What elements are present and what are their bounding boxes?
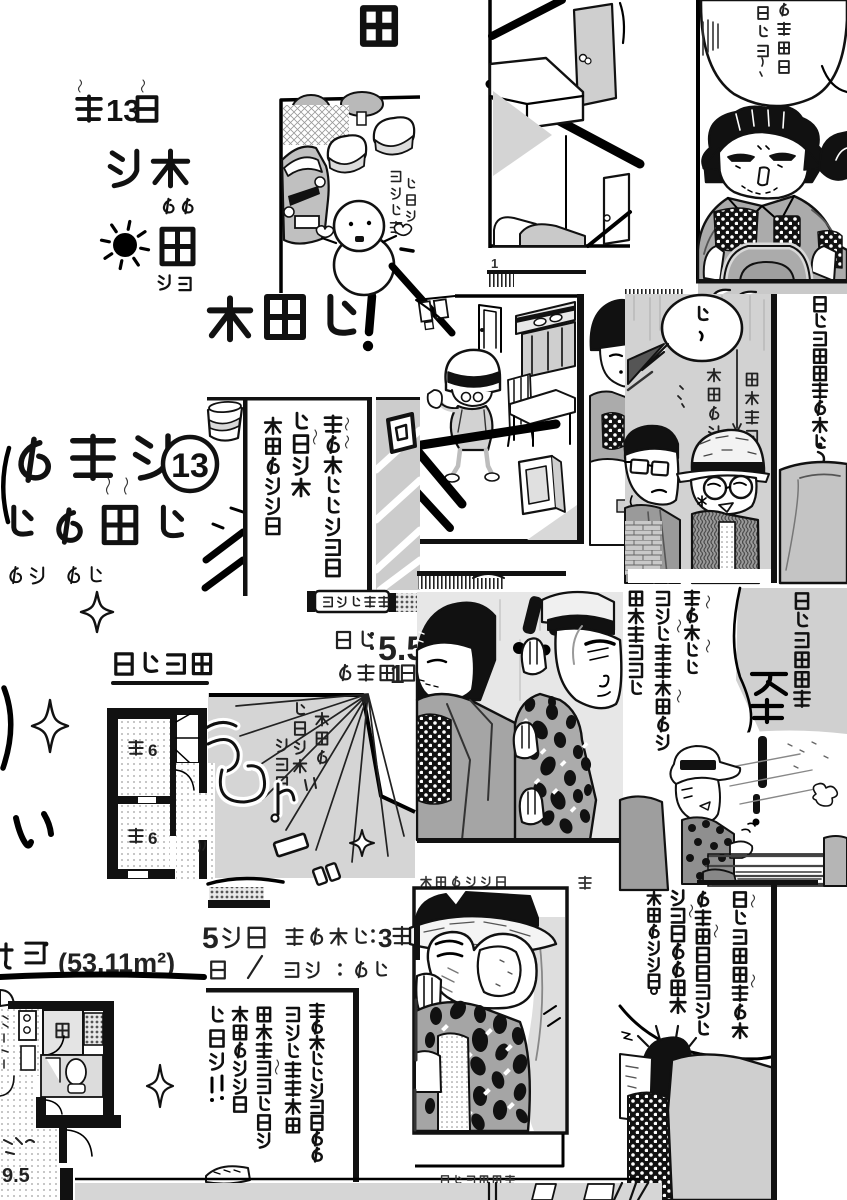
svg-text:3: 3	[378, 923, 392, 953]
svg-text:6: 6	[148, 741, 157, 760]
svg-text:13: 13	[106, 93, 140, 128]
svg-text:6: 6	[148, 829, 157, 848]
svg-text:13: 13	[171, 447, 209, 485]
svg-text:5: 5	[202, 922, 219, 955]
svg-text:9.5: 9.5	[2, 1165, 30, 1187]
svg-text:1: 1	[390, 659, 404, 689]
svg-text:1: 1	[491, 256, 498, 271]
